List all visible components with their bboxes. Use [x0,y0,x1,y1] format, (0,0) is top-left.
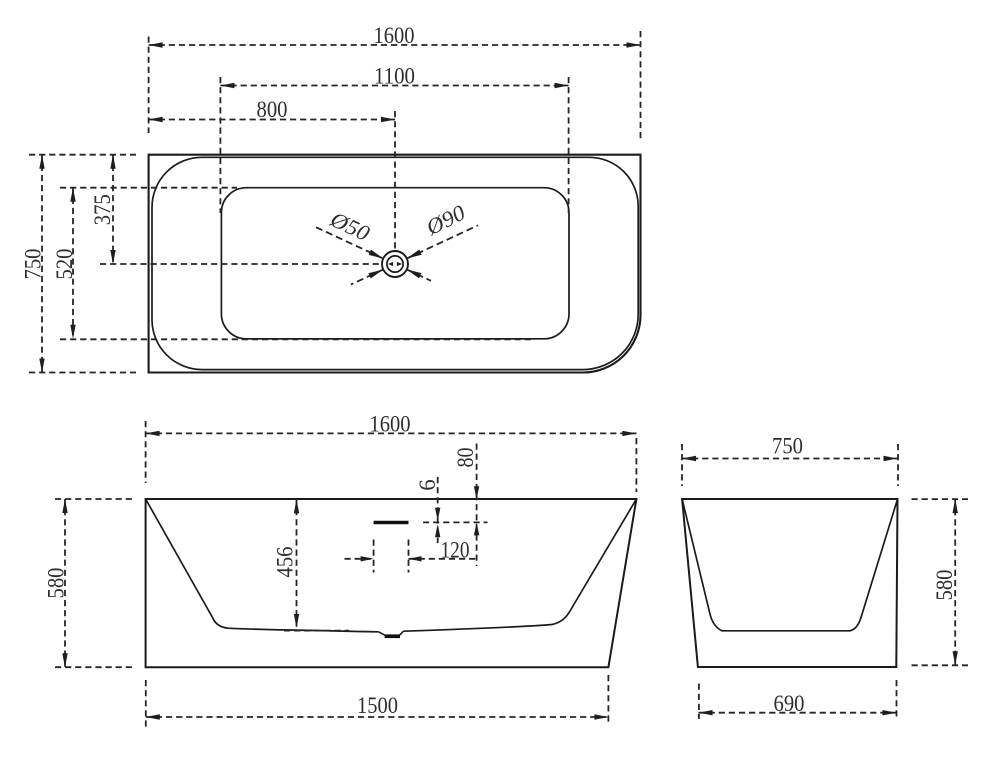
svg-text:1100: 1100 [374,64,415,89]
svg-text:Ø90: Ø90 [421,200,469,241]
svg-text:580: 580 [44,568,69,599]
svg-text:120: 120 [441,538,470,563]
svg-text:750: 750 [21,249,46,280]
svg-text:520: 520 [52,249,77,280]
svg-text:80: 80 [453,448,478,468]
svg-text:690: 690 [774,691,805,716]
svg-text:800: 800 [257,97,288,122]
svg-text:Ø50: Ø50 [326,206,374,246]
svg-text:1600: 1600 [370,411,411,436]
svg-text:456: 456 [273,547,298,578]
svg-text:1600: 1600 [374,23,415,48]
svg-text:375: 375 [90,194,115,225]
svg-text:6: 6 [415,479,440,491]
svg-text:580: 580 [932,570,957,601]
svg-text:750: 750 [772,434,803,459]
svg-text:1500: 1500 [357,693,398,718]
